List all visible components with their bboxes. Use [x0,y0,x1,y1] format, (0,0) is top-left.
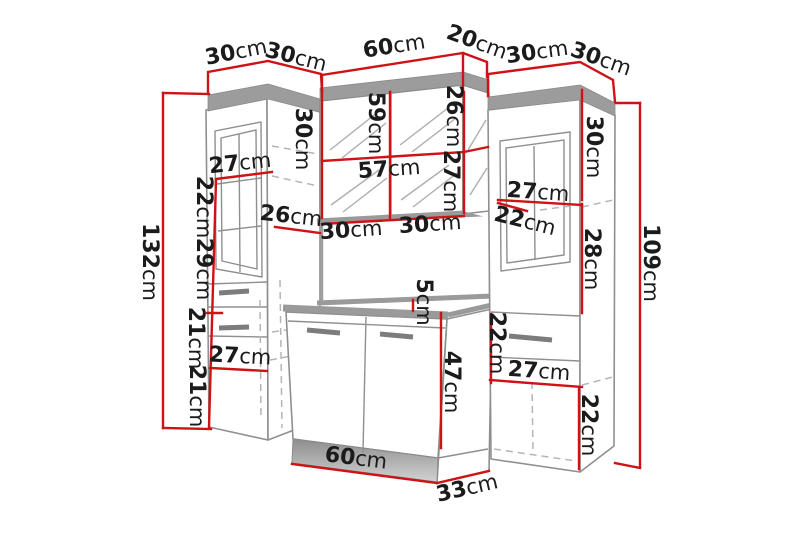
dim-label-mirror-57: 57cm [357,154,421,183]
dim-label-mirror-door-30a: 30cm [319,215,383,244]
left-drawer-handle-1 [219,291,249,293]
dim-label-mirror-26: 26cm [442,85,467,148]
dim-label-right-shelf-27b: 27cm [507,356,571,385]
vanity-door-handle-left [307,330,340,333]
dim-label-left-22: 22cm [192,176,217,239]
dim-label-left-height-132: 132cm [138,223,163,301]
dim-label-left-shelf-27b: 27cm [208,342,272,370]
dim-label-left-29: 29cm [192,238,217,301]
dim-label-mirror-27: 27cm [439,150,464,213]
dim-label-right-shelf-27: 27cm [506,177,570,206]
left-drawer-line-bottom [209,336,268,337]
dim-label-right-height-109: 109cm [639,224,664,302]
left-drawer-handle-2 [219,327,249,328]
dim-label-right-22-mid: 22cm [485,312,510,375]
dim-label-left-21a: 21cm [184,307,209,370]
furniture-dimension-diagram: 30cm 30cm 60cm 20cm 30cm 30cm 132cm 27cm… [0,0,800,533]
dim-label-left-21b: 21cm [185,365,210,428]
dim-label-right-28: 28cm [580,228,605,291]
vanity-front-face [286,312,447,458]
dim-label-vanity-height-47: 47cm [440,351,465,414]
dim-label-right-30: 30cm [582,116,607,179]
dim-label-top-left-width: 30cm [263,37,330,76]
dim-label-mirror-left-30: 30cm [291,108,316,171]
diagram-canvas: 30cm 30cm 60cm 20cm 30cm 30cm 132cm 27cm… [0,0,800,533]
dim-label-mirror-width: 60cm [361,29,427,63]
dim-label-top-left-depth: 30cm [203,34,269,70]
dim-label-right-22-bottom: 22cm [577,394,602,457]
dim-label-mirror-59: 59cm [364,92,389,155]
vanity-door-handle-right [380,334,413,337]
dim-label-mirror-door-30b: 30cm [398,209,462,238]
dim-label-gap-5: 5cm [412,278,437,325]
